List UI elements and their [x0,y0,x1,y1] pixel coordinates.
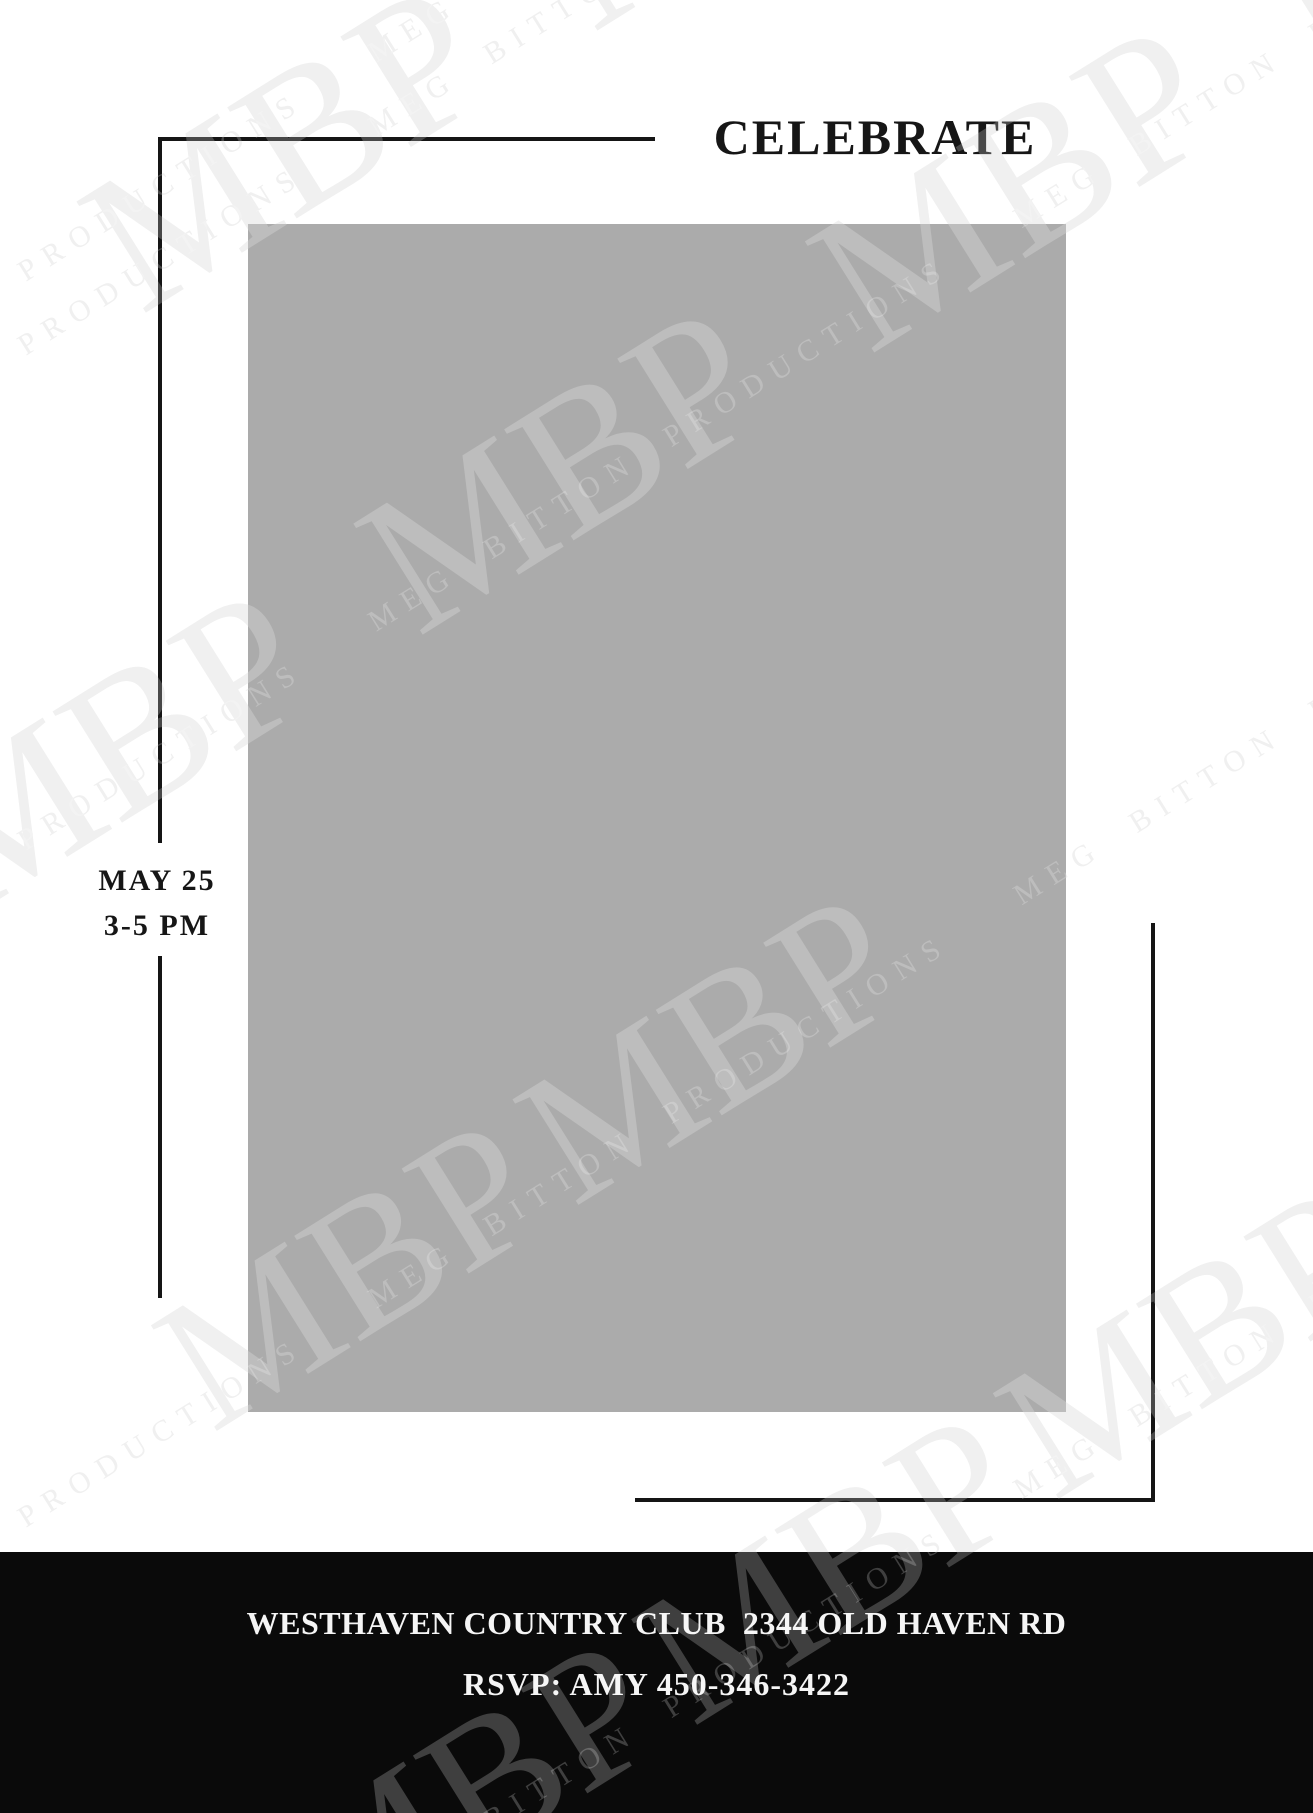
watermark-logo-text: MBP [505,0,969,62]
rsvp-line: RSVP: AMY 450-346-3422 [0,1664,1313,1704]
frame-line-right [1151,923,1155,1502]
frame-line-left-lower [158,956,162,1298]
headline-celebrate: CELEBRATE [640,107,1110,167]
invitation-template-page: MEG BITTON PRODUCTIONS MEG BITTON PRODUC… [0,0,1313,1813]
frame-line-top [158,137,655,141]
date-line: MAY 25 [58,858,256,903]
watermark-logo-text: MBP [1233,0,1313,102]
watermark-logo-text: MBP [505,0,969,62]
photo-placeholder [248,224,1066,1412]
frame-line-bottom [635,1498,1155,1502]
date-time-block: MAY 25 3-5 PM [58,858,256,948]
venue-address-line: WESTHAVEN COUNTRY CLUB 2344 OLD HAVEN RD [0,1603,1313,1643]
watermark-logo-text: MBP [1233,0,1313,102]
frame-line-left-upper [158,137,162,843]
time-line: 3-5 PM [58,903,256,948]
